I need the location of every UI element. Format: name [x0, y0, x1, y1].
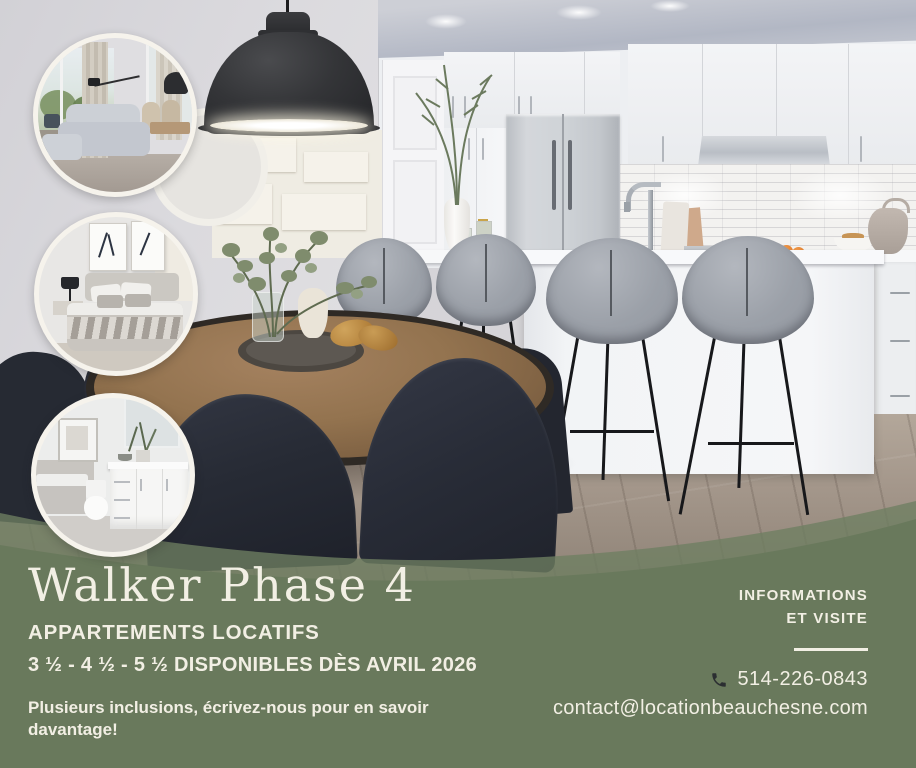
- availability-line: 3 ½ - 4 ½ - 5 ½ DISPONIBLES DÈS AVRIL 20…: [28, 653, 477, 677]
- band-text-left: Walker Phase 4 APPARTEMENTS LOCATIFS 3 ½…: [28, 562, 477, 742]
- drawer-handle: [114, 481, 130, 483]
- phone-icon: [710, 671, 728, 689]
- drawer-handle: [114, 517, 130, 519]
- small-pendant-lamp: [164, 72, 188, 94]
- ottoman: [42, 134, 82, 160]
- table-lamp-stem: [69, 289, 71, 301]
- floor-lamp-head: [88, 78, 100, 86]
- subtitle: APPARTEMENTS LOCATIFS: [28, 622, 477, 645]
- inset-photo-living-room: [33, 33, 197, 197]
- note-line2: davantage!: [28, 720, 118, 739]
- drawer-handle: [114, 499, 130, 501]
- note-text: Plusieurs inclusions, écrivez-nous pour …: [28, 697, 477, 742]
- dining-nook-table: [150, 122, 190, 134]
- pillow-gray: [125, 294, 151, 307]
- door-handle: [140, 479, 142, 491]
- art-sketch: [66, 426, 88, 450]
- door-handle: [166, 479, 168, 491]
- framed-art: [89, 223, 127, 271]
- patio-chair: [44, 114, 60, 128]
- pillow-gray: [97, 295, 123, 308]
- striped-throw: [67, 317, 183, 339]
- art-branch: [107, 234, 114, 256]
- art-branch: [98, 232, 108, 257]
- contact-heading-line2: ET VISITE: [786, 610, 868, 627]
- phone-row: 514-226-0843: [553, 668, 868, 691]
- vanity-cabinet: [110, 469, 188, 529]
- bathtub-rim: [36, 474, 88, 486]
- page-title: Walker Phase 4: [28, 562, 477, 608]
- contact-email: contact@locationbeauchesne.com: [553, 697, 868, 720]
- bathtub-front: [36, 486, 86, 514]
- toilet-bowl: [84, 496, 108, 520]
- table-lamp-shade: [61, 277, 79, 289]
- contact-phone: 514-226-0843: [737, 668, 868, 691]
- inset-photo-bathroom: [31, 393, 195, 557]
- vanity-counter: [108, 462, 188, 469]
- contact-heading: INFORMATIONS ET VISITE: [553, 585, 868, 630]
- apartment-flyer: Walker Phase 4 APPARTEMENTS LOCATIFS 3 ½…: [0, 0, 916, 768]
- contact-heading-line1: INFORMATIONS: [739, 587, 868, 604]
- inset-photo-bedroom: [34, 212, 198, 376]
- framed-art: [58, 418, 98, 462]
- framed-art: [131, 221, 165, 271]
- plant-vase: [136, 450, 150, 462]
- band-text-right: INFORMATIONS ET VISITE 514-226-0843 cont…: [553, 585, 868, 720]
- vanity-seam: [136, 469, 137, 529]
- art-branch: [140, 232, 151, 255]
- vanity-seam: [162, 469, 163, 529]
- note-line1: Plusieurs inclusions, écrivez-nous pour …: [28, 698, 429, 717]
- counter-bowl: [118, 454, 132, 461]
- divider-line: [794, 648, 868, 651]
